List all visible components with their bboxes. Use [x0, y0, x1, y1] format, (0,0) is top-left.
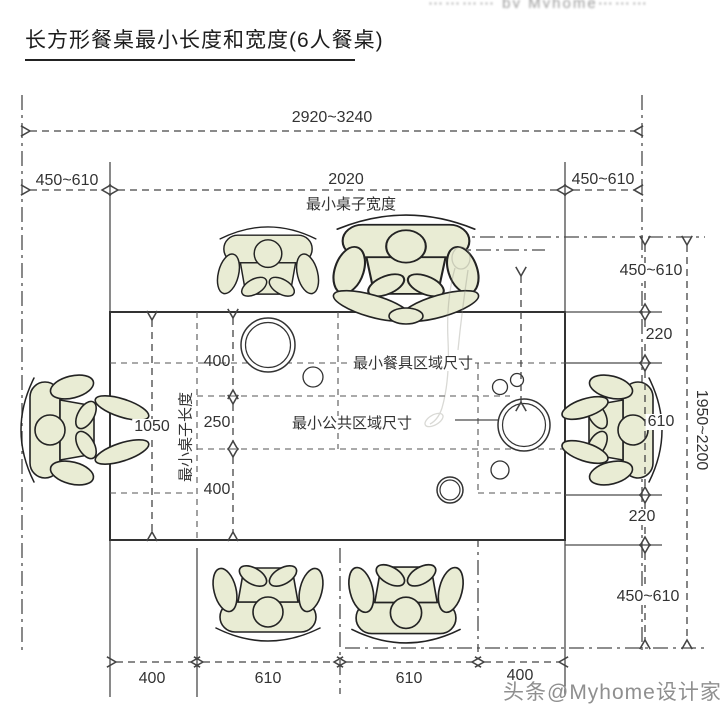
- dim-shared-depth: 250: [204, 415, 231, 431]
- dim-left-clearance: 450~610: [36, 173, 99, 189]
- dim-right-clearance: 450~610: [572, 172, 635, 188]
- bottom-watermark: 头条@Myhome设计家: [503, 676, 720, 706]
- plate-icon: [498, 399, 550, 451]
- bowl-icon: [437, 477, 463, 503]
- dim-overall-depth: 1950~2200: [693, 390, 709, 471]
- dim-overall-width: 2920~3240: [292, 110, 373, 126]
- chair-left: [21, 371, 100, 489]
- chair-bottom-left: [209, 562, 327, 641]
- label-dish-area: 最小餐具区域尺寸: [351, 356, 475, 371]
- title-underline: [25, 59, 355, 61]
- chair-bottom-right: [345, 560, 468, 643]
- dim-right-chain-2: 220: [644, 327, 675, 343]
- plate-icon: [241, 318, 295, 372]
- dim-place-depth-bottom: 400: [204, 482, 231, 498]
- dim-table-length: 1050: [132, 419, 172, 435]
- dining-table-dimension-diagram: 长方形餐桌最小长度和宽度(6人餐桌) ⋯⋯⋯⋯ by Myhome⋯⋯⋯ 292…: [0, 0, 720, 720]
- chair-right: [583, 371, 662, 489]
- dim-right-chain-3: 610: [646, 414, 677, 430]
- top-watermark: ⋯⋯⋯⋯ by Myhome⋯⋯⋯: [428, 0, 720, 8]
- cup-icon: [491, 461, 509, 479]
- dim-bottom-chain-1: 400: [139, 671, 166, 687]
- dim-place-depth-top: 400: [204, 354, 231, 370]
- dim-bottom-chain-3: 610: [396, 671, 423, 687]
- dim-bottom-chain-2: 610: [255, 671, 282, 687]
- label-table-length: 最小桌子长度: [179, 392, 194, 482]
- label-common-area: 最小公共区域尺寸: [290, 416, 414, 431]
- dim-right-chain-4: 220: [627, 509, 658, 525]
- bowl-icon: [303, 367, 323, 387]
- dim-right-chain-1: 450~610: [618, 263, 685, 279]
- chair-top-left: [214, 227, 323, 300]
- dim-right-chain-5: 450~610: [615, 589, 682, 605]
- cup-icon: [493, 380, 508, 395]
- label-table-width: 最小桌子宽度: [306, 197, 396, 212]
- page-title: 长方形餐桌最小长度和宽度(6人餐桌): [25, 24, 384, 54]
- dim-table-width: 2020: [328, 172, 364, 188]
- chair-top-right: [328, 215, 484, 301]
